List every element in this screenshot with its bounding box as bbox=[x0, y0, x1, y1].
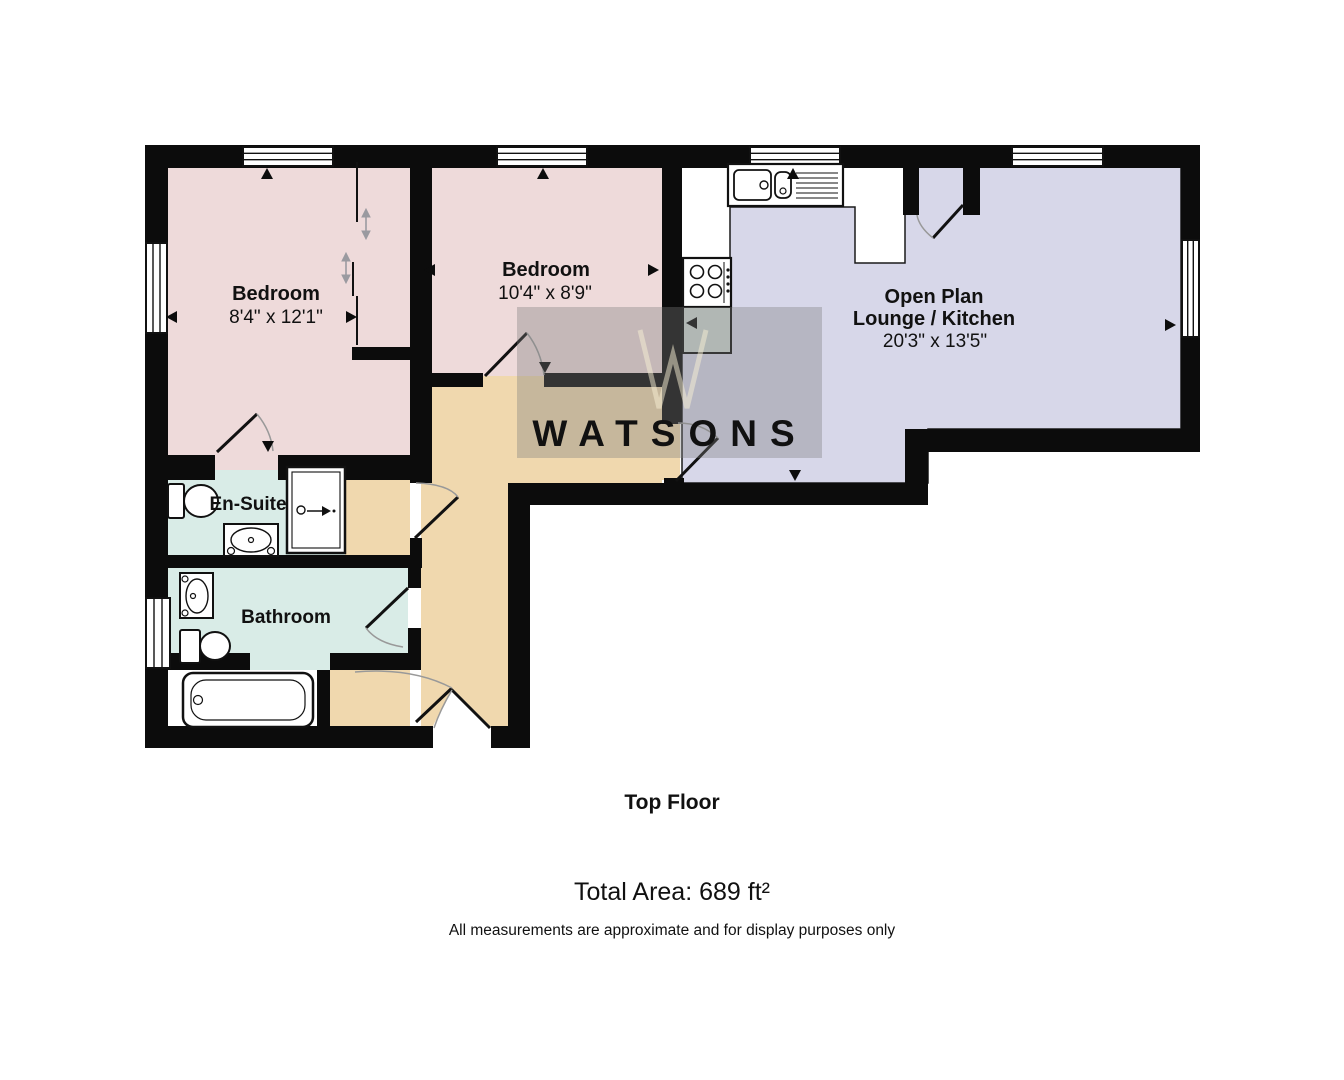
bathroom-basin-icon bbox=[180, 573, 213, 618]
window-bedroom1-top bbox=[243, 147, 333, 166]
wall-bedroom2-bottom-a bbox=[432, 373, 483, 387]
wall-ensuite-right-top bbox=[410, 455, 422, 483]
floor-plan-drawing: Bedroom 8'4" x 12'1" Bedroom 10'4" x 8'9… bbox=[0, 0, 1344, 1080]
floor-plan-page: Bedroom 8'4" x 12'1" Bedroom 10'4" x 8'9… bbox=[0, 0, 1344, 1080]
wall-ensuite-right-bottom bbox=[410, 538, 422, 568]
wall-bath-vertical bbox=[317, 670, 330, 748]
wall-bottom-right bbox=[491, 726, 530, 748]
wall-bath-right bbox=[330, 653, 421, 670]
open-plan-label-line2: Lounge / Kitchen bbox=[853, 308, 1015, 330]
ensuite-basin-icon bbox=[224, 524, 278, 556]
wall-alcove-stub-right bbox=[963, 160, 980, 215]
window-openplan-right bbox=[1182, 240, 1199, 337]
bedroom-2-label: Bedroom bbox=[502, 259, 590, 281]
total-area: Total Area: 689 ft² bbox=[0, 878, 1344, 907]
window-bedroom1-left bbox=[146, 243, 167, 333]
hall-floor-ensuite-strip bbox=[345, 480, 410, 568]
window-bedroom2-top bbox=[497, 147, 587, 166]
bathroom-label: Bathroom bbox=[241, 607, 331, 628]
open-plan-label-line1: Open Plan bbox=[885, 286, 984, 308]
window-openplan-top bbox=[1012, 147, 1103, 166]
bedroom-2-dimensions: 10'4" x 8'9" bbox=[498, 283, 592, 304]
wall-openplan-bottom bbox=[905, 429, 1200, 452]
wall-bottom-left bbox=[145, 726, 433, 748]
wall-mid bbox=[508, 483, 928, 505]
open-plan-dimensions: 20'3" x 13'5" bbox=[883, 331, 987, 352]
wall-door-nub bbox=[664, 478, 684, 490]
wall-corridor-right bbox=[508, 483, 530, 748]
kitchen-sink-icon bbox=[728, 164, 843, 206]
wall-wardrobe-stub bbox=[352, 347, 410, 360]
wall-bathroom-right-top bbox=[408, 568, 421, 588]
hall-floor-alcove bbox=[330, 670, 410, 728]
window-bathroom-left bbox=[146, 598, 170, 668]
wall-alcove-stub-left bbox=[903, 160, 919, 215]
disclaimer: All measurements are approximate and for… bbox=[0, 922, 1344, 940]
ensuite-label: En-Suite bbox=[209, 494, 286, 515]
shower-icon bbox=[287, 467, 345, 553]
bedroom-1-dimensions: 8'4" x 12'1" bbox=[229, 307, 323, 328]
watermark: WATSONS bbox=[517, 307, 822, 458]
floor-label: Top Floor bbox=[0, 791, 1344, 815]
hob-icon bbox=[683, 258, 731, 307]
bedroom-1-label: Bedroom bbox=[232, 283, 320, 305]
wall-bedroom1-bottom-a bbox=[145, 455, 215, 480]
bathtub-icon bbox=[183, 673, 313, 727]
wall-bedroom1-bedroom2 bbox=[410, 162, 432, 483]
watermark-text: WATSONS bbox=[532, 413, 807, 454]
